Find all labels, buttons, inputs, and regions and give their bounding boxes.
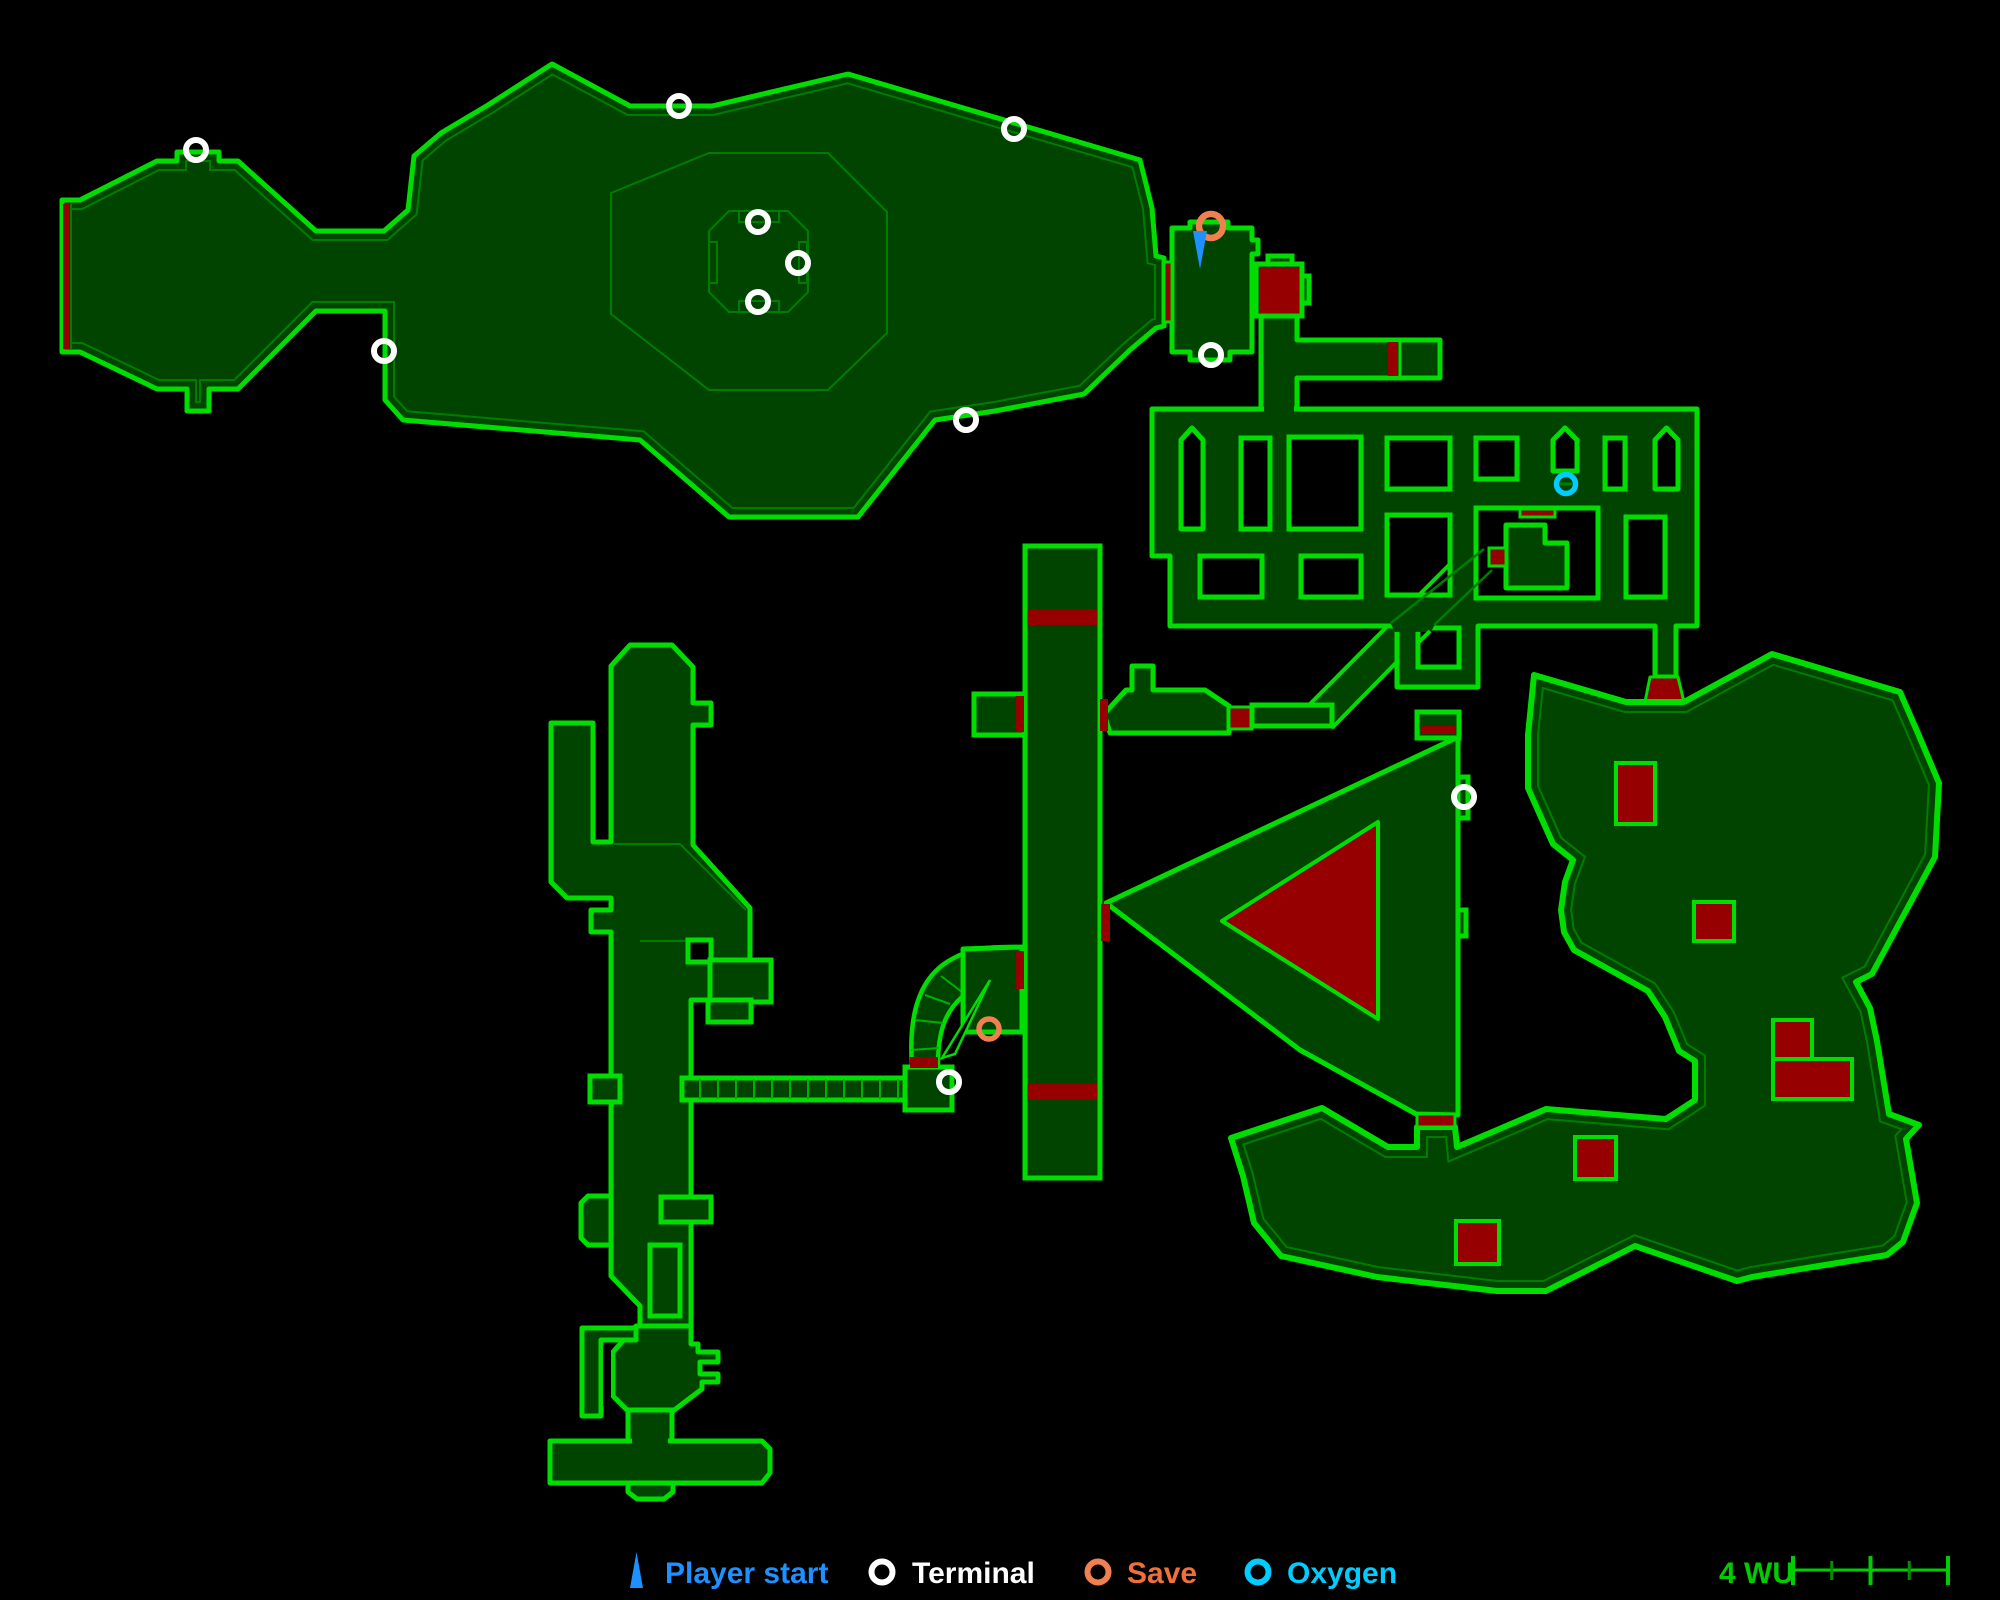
svg-text:Player start: Player start: [665, 1557, 828, 1590]
svg-text:4 WU: 4 WU: [1719, 1557, 1794, 1590]
svg-text:Terminal: Terminal: [912, 1557, 1035, 1590]
svg-text:Oxygen: Oxygen: [1287, 1557, 1397, 1590]
svg-text:Save: Save: [1127, 1557, 1197, 1590]
